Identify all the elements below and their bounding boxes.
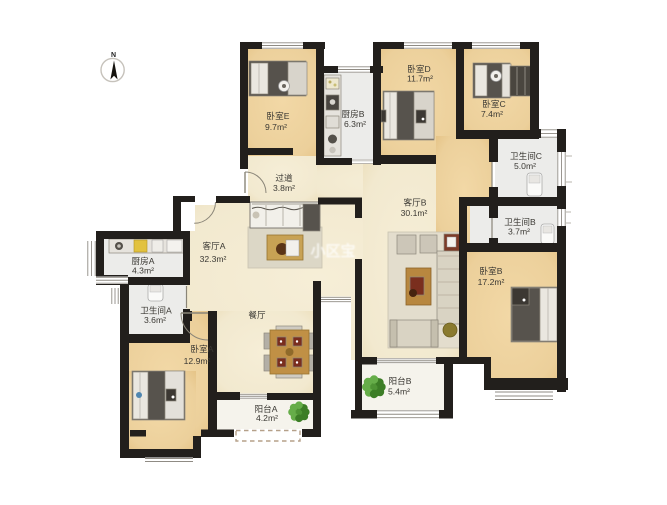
svg-text:5.4m²: 5.4m² <box>388 387 410 397</box>
svg-text:客厅B: 客厅B <box>404 197 427 208</box>
svg-text:阳台B: 阳台B <box>389 375 412 386</box>
svg-text:12.9m²: 12.9m² <box>184 356 211 366</box>
svg-text:小区宝: 小区宝 <box>310 242 355 260</box>
svg-text:N: N <box>111 52 116 59</box>
svg-text:卫生间B: 卫生间B <box>504 216 536 227</box>
svg-text:5.0m²: 5.0m² <box>514 161 536 171</box>
svg-text:卧室A: 卧室A <box>191 343 214 354</box>
svg-text:17.2m²: 17.2m² <box>478 277 505 287</box>
svg-text:卧室B: 卧室B <box>480 265 503 276</box>
svg-text:厨房A: 厨房A <box>132 255 155 266</box>
svg-text:3.7m²: 3.7m² <box>508 227 530 237</box>
svg-text:卧室C: 卧室C <box>482 98 505 109</box>
svg-text:客厅A: 客厅A <box>203 240 226 251</box>
svg-text:过道: 过道 <box>275 172 293 183</box>
svg-text:32.3m²: 32.3m² <box>200 254 227 264</box>
svg-text:11.7m²: 11.7m² <box>407 74 433 84</box>
svg-text:3.8m²: 3.8m² <box>273 183 295 193</box>
svg-text:餐厅: 餐厅 <box>248 310 266 320</box>
svg-text:6.3m²: 6.3m² <box>344 119 366 129</box>
svg-text:卧室E: 卧室E <box>267 110 290 121</box>
svg-text:4.2m²: 4.2m² <box>256 413 278 423</box>
svg-text:30.1m²: 30.1m² <box>401 208 428 218</box>
svg-text:7.4m²: 7.4m² <box>481 109 503 119</box>
svg-text:厨房B: 厨房B <box>342 108 365 119</box>
svg-text:9.7m²: 9.7m² <box>265 122 287 132</box>
svg-text:卧室D: 卧室D <box>407 63 430 74</box>
svg-text:4.3m²: 4.3m² <box>132 266 154 276</box>
svg-text:卫生间C: 卫生间C <box>510 150 542 161</box>
svg-text:3.6m²: 3.6m² <box>144 315 166 325</box>
svg-text:卫生间A: 卫生间A <box>140 305 172 316</box>
